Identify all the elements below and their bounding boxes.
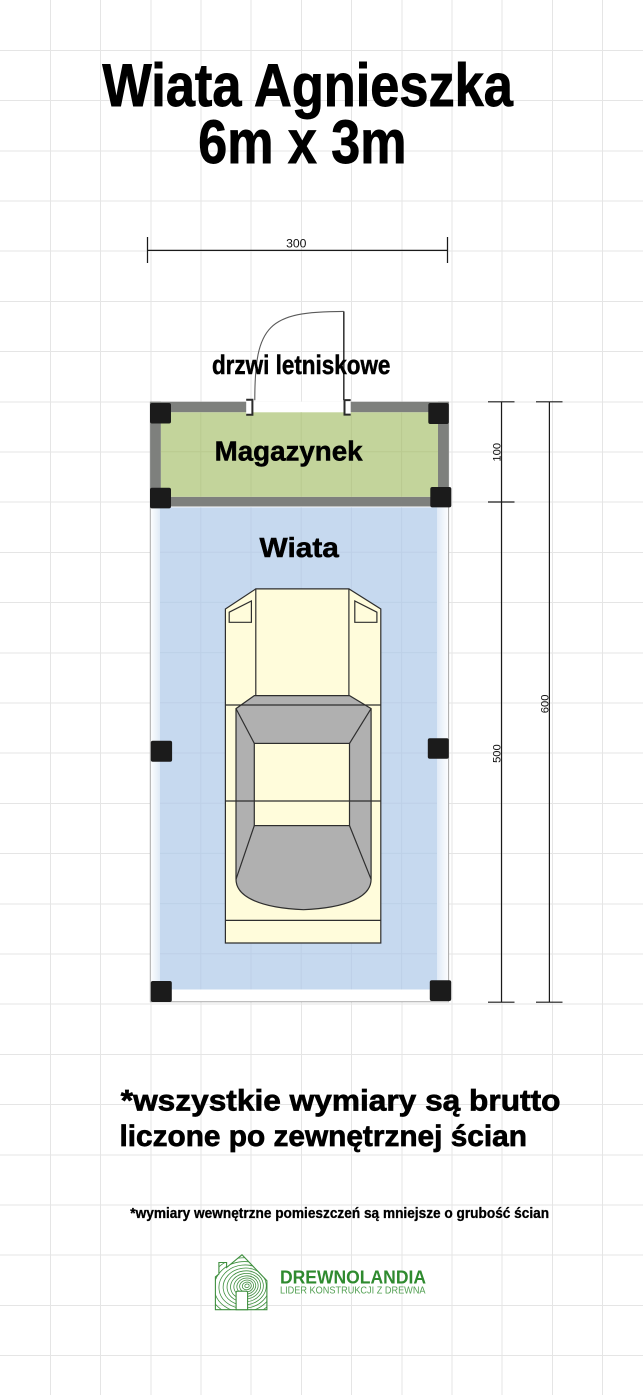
svg-text:100: 100 [492, 443, 504, 462]
svg-text:drzwi letniskowe: drzwi letniskowe [212, 350, 391, 380]
svg-text:liczone po zewnętrznej ścian: liczone po zewnętrznej ścian [119, 1120, 527, 1153]
svg-text:*wszystkie wymiary są brutto: *wszystkie wymiary są brutto [121, 1084, 561, 1117]
svg-text:LIDER KONSTRUKCJI Z DREWNA: LIDER KONSTRUKCJI Z DREWNA [280, 1285, 426, 1297]
svg-text:300: 300 [286, 236, 307, 250]
svg-text:500: 500 [492, 744, 504, 763]
svg-text:*wymiary wewnętrzne pomieszcze: *wymiary wewnętrzne pomieszczeń są mniej… [130, 1206, 549, 1222]
svg-text:6m x 3m: 6m x 3m [198, 108, 406, 177]
svg-text:Wiata: Wiata [260, 532, 340, 563]
svg-text:600: 600 [540, 695, 552, 714]
svg-text:Magazynek: Magazynek [215, 435, 364, 466]
